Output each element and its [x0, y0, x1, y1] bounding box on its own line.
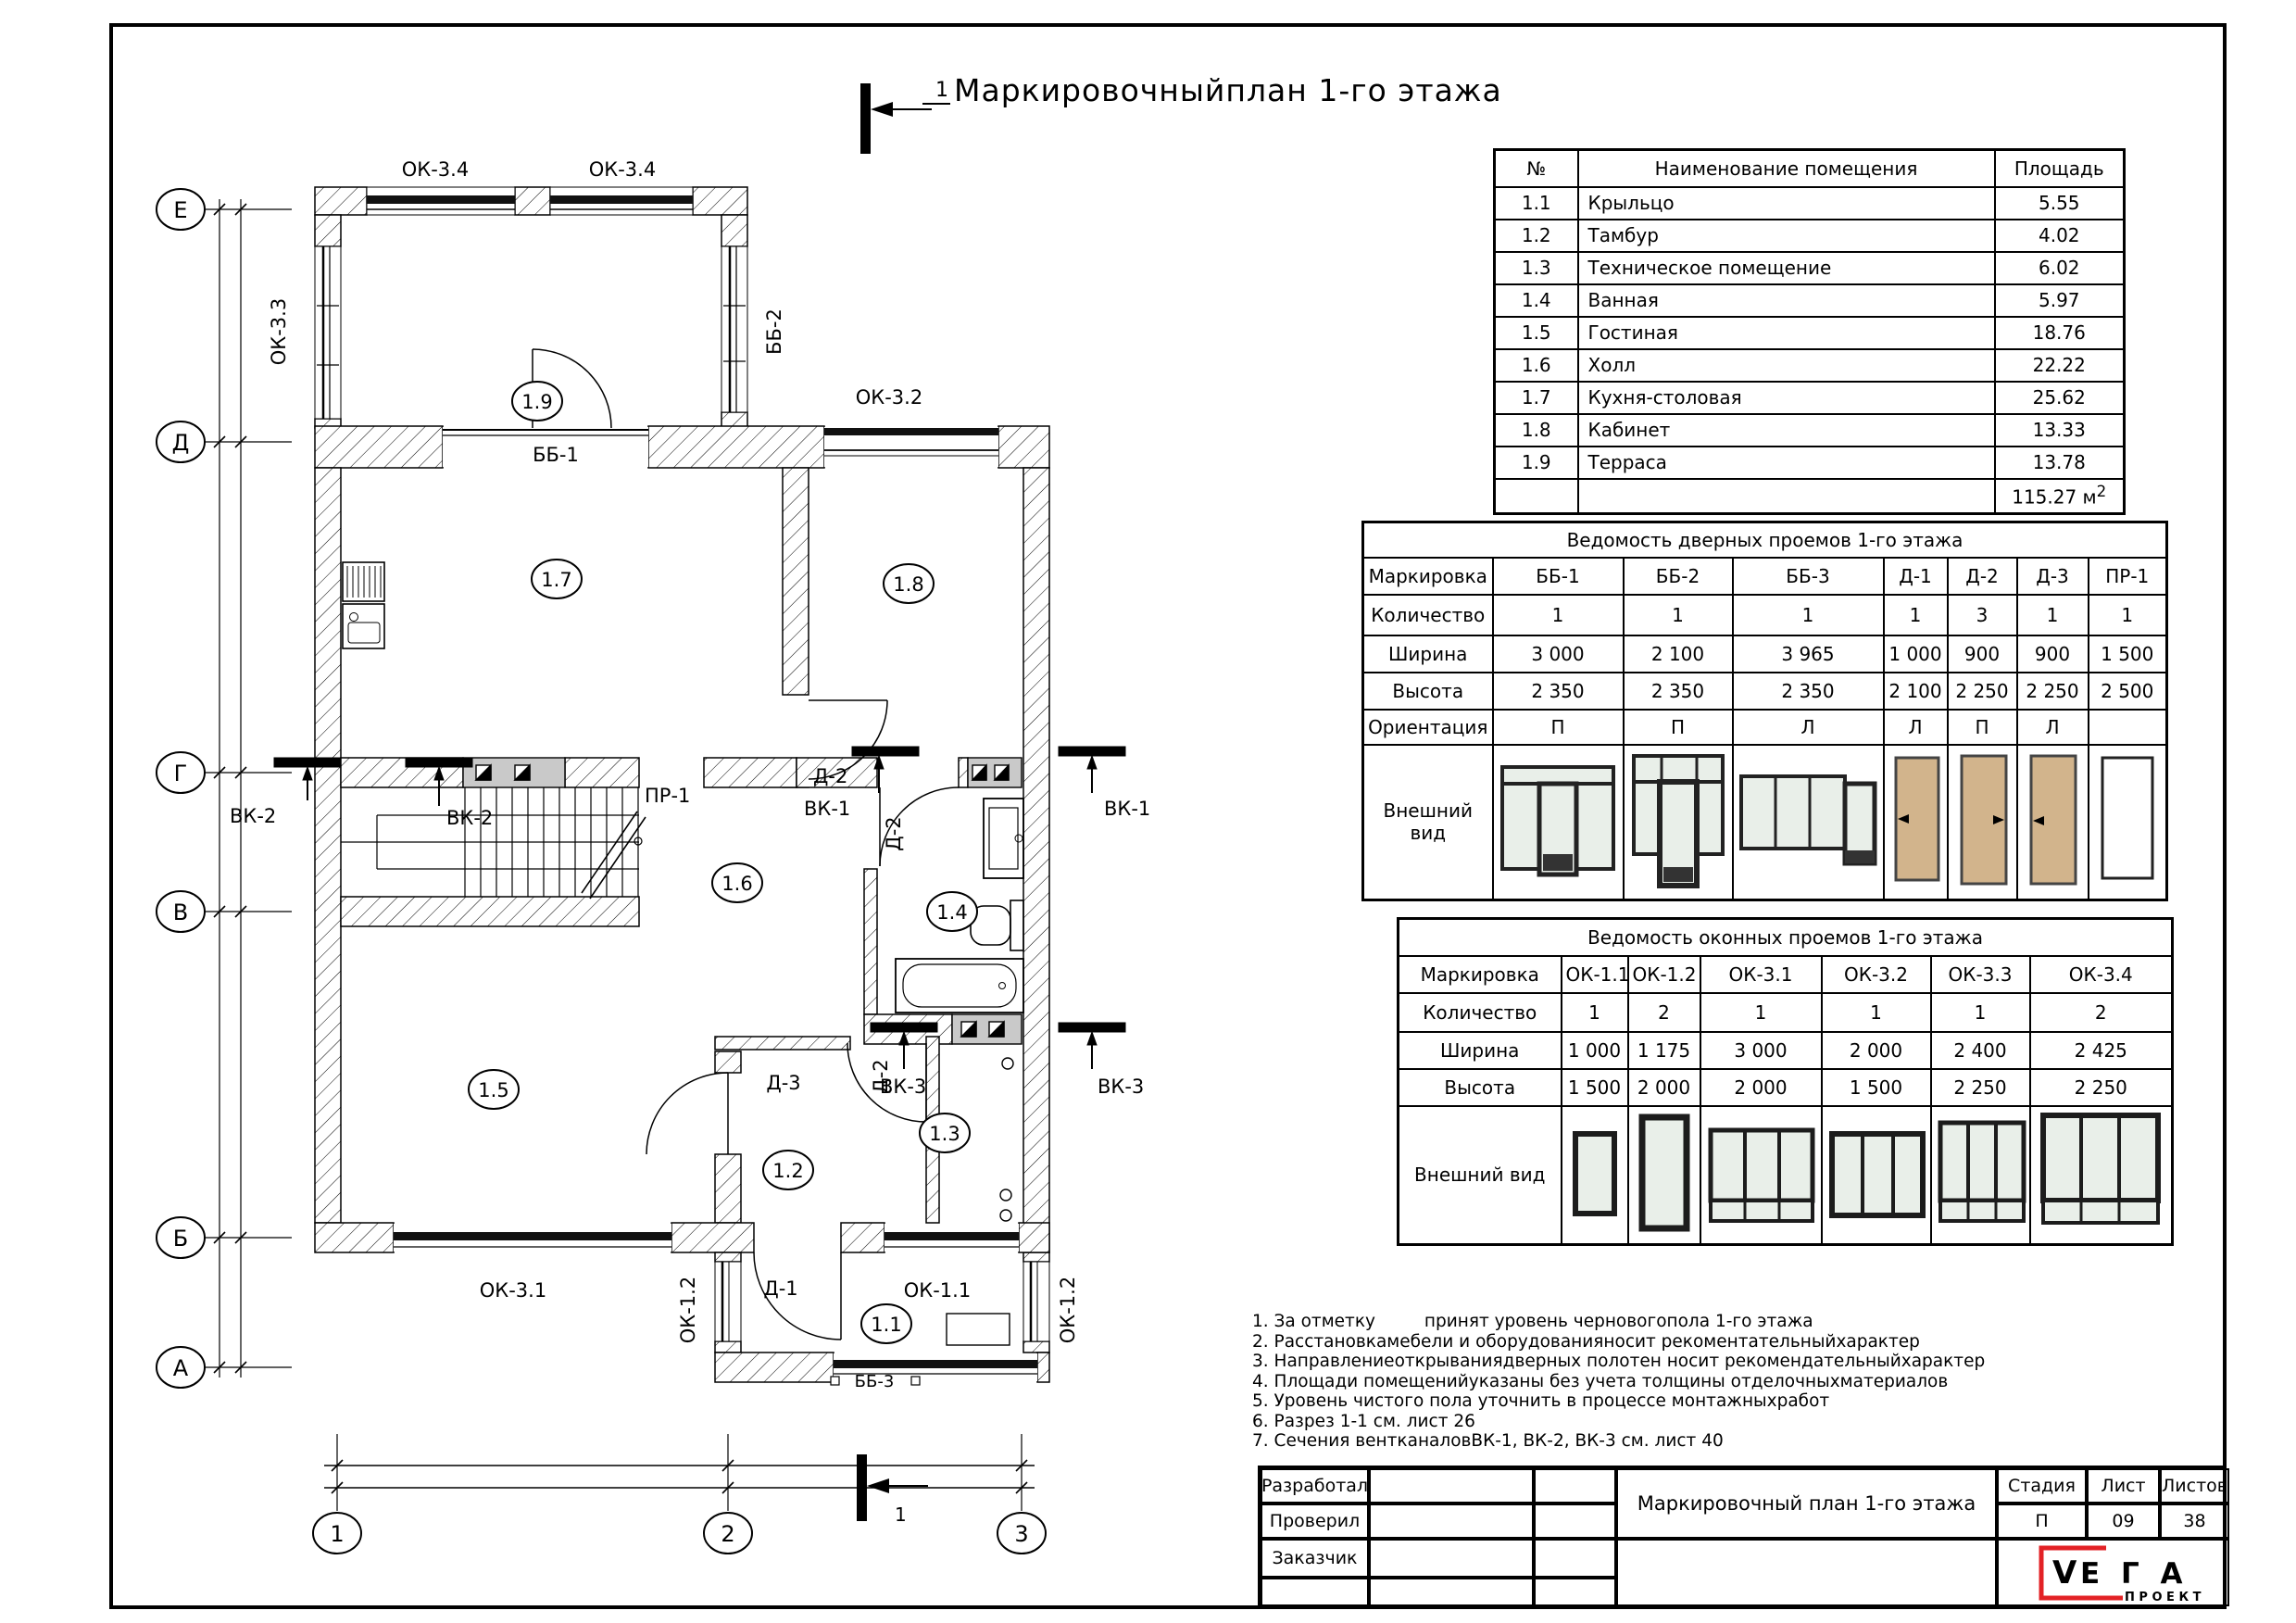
titleblock-empty-cell [1534, 1578, 1616, 1606]
table-row: Маркировка ББ-1ББ-2ББ-3 Д-1Д-2Д-3 ПР-1 [1363, 558, 2167, 595]
room-badge-1-4: 1.4 [936, 901, 967, 924]
axis-e: Е [173, 197, 187, 223]
toilet-tank [1010, 900, 1023, 950]
label-ok-3-1: ОК-3.1 [480, 1279, 546, 1302]
window-view-ok31 [1705, 1108, 1818, 1238]
label-ok-1-2-b: ОК-1.2 [1057, 1277, 1079, 1343]
label-bb-2: ББ-2 [763, 308, 785, 355]
logo-cell: V Е Г А П Р О Е К Т [1997, 1539, 2229, 1606]
label-bb-3: ББ-3 [855, 1372, 895, 1391]
stage-value: П [1997, 1503, 2087, 1539]
titleblock-developed-label: Разработал [1261, 1468, 1369, 1503]
titleblock-empty-cell [1369, 1539, 1534, 1578]
door-view-pr1 [2095, 750, 2160, 889]
section-marker-top: 1 [860, 79, 950, 154]
label-ok-3-4-b: ОК-3.4 [589, 158, 656, 181]
table-row: Высота 2 3502 3502 350 2 1002 2502 250 2… [1363, 673, 2167, 710]
room-badge-1-1: 1.1 [871, 1314, 901, 1336]
kitchen-fixtures [343, 562, 384, 648]
door-table-title: Ведомость дверных проемов 1-го этажа [1363, 522, 2167, 558]
label-d-3: Д-3 [766, 1072, 800, 1094]
total-area: 115.27 м2 [1995, 479, 2125, 514]
sheets-value: 38 [2160, 1503, 2229, 1539]
room-table: № Наименование помещения Площадь 1.1Крыл… [1493, 148, 2126, 515]
door-view-bb1 [1498, 750, 1618, 889]
window-view-ok11 [1566, 1108, 1624, 1238]
door-table-title-row: Ведомость дверных проемов 1-го этажа [1363, 522, 2167, 558]
window-views-row: Внешний вид [1399, 1106, 2173, 1245]
note-line: 2. Расстановкамебели и оборудованияносит… [1252, 1332, 2215, 1352]
titleblock-empty-cell [1534, 1468, 1616, 1503]
titleblock-empty-cell [1369, 1503, 1534, 1539]
sheet-label: Лист [2087, 1468, 2160, 1503]
window-view-ok33 [1936, 1108, 2028, 1238]
note-line: 1. За отметку принят уровень черновогопо… [1252, 1312, 2215, 1332]
label-pr-1: ПР-1 [645, 785, 690, 807]
window-table-title-row: Ведомость оконных проемов 1-го этажа [1399, 919, 2173, 956]
label-vk-3-a: ВК-3 [880, 1076, 926, 1098]
col-area: Площадь [1995, 150, 2125, 187]
logo-ega: Е Г А [2080, 1557, 2189, 1591]
window-view-ok34 [2036, 1108, 2165, 1238]
porch-mat [947, 1314, 1010, 1345]
table-row: Ширина 1 0001 1753 000 2 0002 4002 425 [1399, 1032, 2173, 1069]
titleblock-empty-cell [1369, 1468, 1534, 1503]
titleblock-empty-cell [1369, 1578, 1534, 1606]
room-badge-1-8: 1.8 [893, 573, 923, 596]
titleblock-empty-cell [1534, 1539, 1616, 1578]
titleblock-doc-title: Маркировочный план 1-го этажа [1616, 1468, 1997, 1539]
table-row: 1.6Холл22.22 [1495, 349, 2125, 382]
label-ok-1-2-a: ОК-1.2 [677, 1277, 699, 1343]
page-title: Маркировочныйплан 1-го этажа [954, 72, 1502, 108]
axis-v: В [173, 900, 188, 925]
label-vk-1-b: ВК-1 [1104, 798, 1150, 820]
title-block: Разработал Проверил Заказчик Маркировочн… [1258, 1466, 2227, 1609]
axis-col-3: 3 [1014, 1521, 1028, 1547]
axis-d: Д [172, 430, 190, 456]
table-row: 1.1Крыльцо5.55 [1495, 187, 2125, 220]
col-room-name: Наименование помещения [1578, 150, 1995, 187]
label-d-2-b: Д-2 [883, 816, 905, 850]
stage-label: Стадия [1997, 1468, 2087, 1503]
axis-g: Г [174, 761, 188, 786]
section-number-bottom: 1 [895, 1503, 907, 1526]
table-row: 1.9Терраса13.78 [1495, 447, 2125, 479]
room-badge-1-5: 1.5 [478, 1079, 508, 1101]
window-view-ok32 [1826, 1108, 1928, 1238]
door-view-d2 [1952, 750, 2015, 889]
label-d-2-a: Д-2 [813, 765, 847, 787]
door-views-row: Внешний вид [1363, 745, 2167, 900]
label-ok-3-2: ОК-3.2 [856, 386, 922, 409]
room-badge-1-6: 1.6 [721, 873, 752, 895]
note-line: 5. Уровень чистого пола уточнить в проце… [1252, 1391, 2215, 1412]
table-row: Количество 121 112 [1399, 993, 2173, 1032]
bathtub [896, 959, 1023, 1013]
table-row: 1.4Ванная5.97 [1495, 284, 2125, 317]
room-badge-1-2: 1.2 [772, 1160, 803, 1182]
room-table-total-row: 115.27 м2 [1495, 479, 2125, 514]
label-ok-1-1: ОК-1.1 [904, 1279, 971, 1302]
door-view-d1 [1888, 750, 1946, 889]
table-row: 1.5Гостиная18.76 [1495, 317, 2125, 349]
table-row: Высота 1 5002 0002 000 1 5002 2502 250 [1399, 1069, 2173, 1106]
note-line: 3. Направлениеоткрываниядверных полотен … [1252, 1352, 2215, 1372]
sheets-label: Листов [2160, 1468, 2229, 1503]
label-vk-2-a: ВК-2 [230, 805, 276, 827]
door-table: Ведомость дверных проемов 1-го этажа Мар… [1361, 521, 2168, 901]
table-row: Количество 111 131 1 [1363, 595, 2167, 635]
label-ok-3-3: ОК-3.3 [268, 298, 290, 365]
axis-a: А [173, 1355, 189, 1381]
label-d-1: Д-1 [763, 1277, 797, 1300]
table-row: 1.8Кабинет13.33 [1495, 414, 2125, 447]
titleblock-empty-cell [1616, 1539, 1997, 1606]
door-view-bb2 [1628, 750, 1728, 889]
axis-col-1: 1 [330, 1521, 344, 1547]
window-view-ok12 [1633, 1108, 1696, 1238]
label-bb-1: ББ-1 [533, 444, 579, 466]
titleblock-checked-label: Проверил [1261, 1503, 1369, 1539]
logo-v: V [2052, 1554, 2077, 1592]
table-row: 1.2Тамбур4.02 [1495, 220, 2125, 252]
room-badge-1-7: 1.7 [541, 569, 571, 591]
col-number: № [1495, 150, 1578, 187]
label-vk-1-a: ВК-1 [804, 798, 850, 820]
titleblock-empty-cell [1534, 1503, 1616, 1539]
axis-b: Б [173, 1226, 188, 1252]
logo-sub: П Р О Е К Т [2125, 1591, 2202, 1604]
table-row: Ориентация ППЛ ЛПЛ [1363, 710, 2167, 745]
table-row: Маркировка ОК-1.1ОК-1.2ОК-3.1 ОК-3.2ОК-3… [1399, 956, 2173, 993]
table-row: 1.3Техническое помещение6.02 [1495, 252, 2125, 284]
floor-plan: 1 Е [0, 0, 1241, 1623]
vega-logo: V Е Г А П Р О Е К Т [2021, 1542, 2206, 1604]
label-ok-3-4-a: ОК-3.4 [402, 158, 469, 181]
note-line: 7. Сечения вентканаловВК-1, ВК-2, ВК-3 с… [1252, 1431, 2215, 1452]
label-vk-2-b: ВК-2 [446, 807, 493, 829]
axis-col-2: 2 [721, 1521, 734, 1547]
room-badge-1-9: 1.9 [521, 391, 552, 413]
column-grid-bottom: 1 2 3 [313, 1434, 1046, 1554]
room-table-header: № Наименование помещения Площадь [1495, 150, 2125, 187]
drawing-sheet: 1 Е [0, 0, 2296, 1623]
table-row: Ширина 3 0002 1003 965 1 000900900 1 500 [1363, 635, 2167, 673]
label-vk-3-b: ВК-3 [1098, 1076, 1144, 1098]
section-number-top: 1 [935, 79, 948, 102]
door-view-d3 [2022, 750, 2085, 889]
window-table: Ведомость оконных проемов 1-го этажа Мар… [1397, 917, 2174, 1246]
sheet-value: 09 [2087, 1503, 2160, 1539]
door-view-bb3 [1738, 750, 1878, 889]
room-badge-1-3: 1.3 [929, 1123, 960, 1145]
window-table-title: Ведомость оконных проемов 1-го этажа [1399, 919, 2173, 956]
tech-pipes [1000, 1058, 1013, 1221]
table-row: 1.7Кухня-столовая25.62 [1495, 382, 2125, 414]
note-line: 4. Площади помещенийуказаны без учета то… [1252, 1372, 2215, 1392]
axis-grid-left: Е Д Г В Б А [157, 189, 292, 1388]
titleblock-empty-cell [1261, 1578, 1369, 1606]
note-line: 6. Разрез 1-1 см. лист 26 [1252, 1412, 2215, 1432]
stairs [341, 787, 646, 899]
titleblock-customer-label: Заказчик [1261, 1539, 1369, 1578]
notes: 1. За отметку принят уровень черновогопо… [1252, 1312, 2215, 1452]
